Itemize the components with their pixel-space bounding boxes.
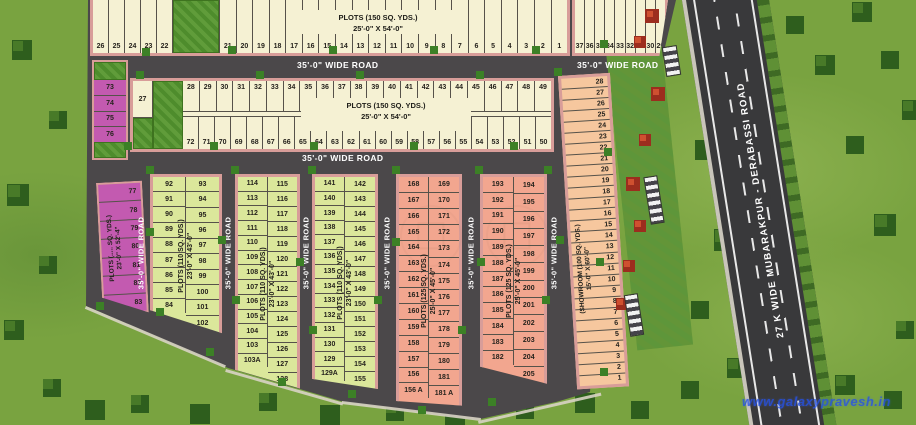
park-area (173, 0, 219, 53)
plot-number: 153 (345, 342, 375, 357)
plots-110-line1: PLOTS (110 SQ. YDS.) (336, 246, 345, 319)
plot-number: 158 (399, 336, 428, 352)
plot-number: 193 (483, 177, 513, 193)
plot-number: 3 (518, 0, 535, 53)
plots-150-line2: 25'-0" X 54'-0" (301, 111, 471, 122)
plot-number: 115 (268, 177, 298, 192)
website-watermark: www.galaxypravesh.in (742, 394, 891, 409)
purple-top-block: 73747576 (92, 60, 128, 160)
park-area (94, 62, 126, 80)
plots-150-line1: PLOTS (150 SQ. YDS.) (301, 100, 471, 111)
top-row-block: 2625242322 21201918171615141312111098765… (90, 0, 570, 56)
plot-number: 48 (518, 81, 535, 111)
plot-number: 34 (605, 0, 615, 53)
plot-number: 92 (153, 177, 185, 192)
plot-number: 6 (469, 0, 486, 53)
plots-110-line2: 23'-0" X 43'-0" (345, 246, 354, 319)
plot-number: 68 (247, 117, 263, 149)
plot-number: 141 (315, 177, 344, 192)
plot-number: 24 (125, 0, 141, 53)
plot-number: 131 (315, 323, 344, 338)
plot-number: 183 (483, 335, 513, 351)
column3-block: 1411401391381371361351341331321311301291… (312, 174, 378, 392)
plot-number: 103A (238, 354, 267, 368)
lane-line (692, 0, 765, 425)
plot-number: 125 (268, 327, 298, 342)
plot-number: 47 (502, 81, 519, 111)
plot-number: 169 (429, 177, 459, 193)
road-label-top-right: 35'-0" WIDE ROAD (577, 60, 658, 70)
plot-number: 114 (238, 177, 267, 192)
plot-number: 104 (238, 324, 267, 339)
plot-number: 73 (94, 80, 126, 96)
plot-number: 72 (183, 117, 199, 149)
plot-number: 143 (345, 192, 375, 207)
plot-number: 29 (200, 81, 217, 111)
plot-number: 93 (186, 177, 219, 192)
plot-number: 4 (502, 0, 519, 53)
plot-number: 156 A (399, 383, 428, 398)
logo-watermark (400, 205, 462, 267)
plot-number: 26 (93, 0, 109, 53)
plot-number: 157 (399, 352, 428, 368)
park-area (153, 81, 183, 149)
plot-col-73-76: 73747576 (94, 80, 126, 142)
column1-block: 929190898887868584 939495969798991001011… (150, 174, 222, 338)
plot-number: 51 (520, 117, 536, 149)
plot-number: 49 (535, 81, 551, 111)
plots-110-line1: PLOTS (110 SQ. YDS.) (177, 219, 186, 292)
plot-number: 138 (315, 221, 344, 236)
road-label-middle: 35'-0" WIDE ROAD (302, 153, 383, 163)
plot-number: 155 (345, 372, 375, 386)
plot-number: 52 (504, 117, 520, 149)
plot-number: 22 (157, 0, 172, 53)
plots-150-label: PLOTS (150 SQ. YDS.) 25'-0" X 54'-0" (293, 10, 463, 34)
plot-number: 30 (217, 81, 234, 111)
plot-number: 139 (315, 206, 344, 221)
plot-number: 32 (626, 0, 636, 53)
plot-number: 18 (270, 0, 287, 53)
column2-block: 114113112111110109108107106105104103103A… (235, 174, 300, 394)
plot-number: 144 (345, 207, 375, 222)
plot-number: 35 (595, 0, 605, 53)
plot-number: 77 (98, 183, 141, 204)
plot-number: 129 (315, 352, 344, 367)
plot-number: 181 A (429, 386, 459, 401)
plot-number: 140 (315, 192, 344, 207)
plot-number: 194 (514, 177, 545, 194)
plot-number: 168 (399, 177, 428, 193)
plot-number: 46 (485, 81, 502, 111)
road-label-top-left: 35'-0" WIDE ROAD (297, 60, 378, 70)
plot-27-column: 27 (133, 81, 153, 149)
plot-number: 54 (472, 117, 488, 149)
plot-number: 152 (345, 327, 375, 342)
plot-number: 112 (238, 206, 267, 221)
plot-number: 117 (268, 207, 298, 222)
plot-number: 69 (231, 117, 247, 149)
plot-number: 31 (233, 81, 250, 111)
road-label-v5: 35'-0" WIDE ROAD (467, 217, 476, 290)
plot-number: 203 (514, 332, 545, 349)
road-label-v6: 35'-0" WIDE ROAD (550, 217, 559, 290)
plot-number: 33 (615, 0, 625, 53)
park-area (133, 118, 153, 149)
plot-number: 129A (315, 367, 344, 381)
plot-number: 154 (345, 357, 375, 372)
plots-110-label: PLOTS (110 SQ. YDS.) 23'-0" X 43'-0" (259, 247, 277, 320)
plots-150-line1: PLOTS (150 SQ. YDS.) (293, 12, 463, 23)
plot-number: 1 (579, 373, 626, 386)
plot-number: 127 (268, 358, 298, 373)
plot-number: 180 (429, 354, 459, 370)
plot-number: 67 (263, 117, 279, 149)
plot-number: 84 (153, 299, 185, 313)
plot-number: 182 (483, 351, 513, 366)
plot-row-37-29: 373635343332313029 (575, 0, 665, 53)
plot-number: 76 (94, 127, 126, 142)
plot-number: 31 (636, 0, 646, 53)
plot-number: 70 (215, 117, 231, 149)
plot-number: 204 (514, 350, 545, 367)
plot-number: 91 (153, 192, 185, 207)
plot-number: 181 (429, 370, 459, 386)
corner-block-37-29: 373635343332313029 (572, 0, 668, 56)
plot-number: 116 (268, 192, 298, 207)
plot-number: 25 (109, 0, 125, 53)
plots-150-line2: 25'-0" X 54'-0" (293, 23, 463, 34)
plot-number: 101 (186, 300, 219, 315)
plot-number: 2 (535, 0, 552, 53)
site-plan-map: 2625242322 21201918171615141312111098765… (0, 0, 916, 425)
plot-number: 184 (483, 319, 513, 335)
plot-number: 142 (345, 177, 375, 192)
plot-number: 111 (238, 221, 267, 236)
road-label-v1: 35'-0" WIDE ROAD (137, 217, 146, 290)
plot-number: 50 (536, 117, 551, 149)
plot-number: 37 (575, 0, 585, 53)
road-label-v2: 35'-0" WIDE ROAD (224, 217, 233, 290)
plot-number: 130 (315, 338, 344, 353)
plot-number: 66 (279, 117, 295, 149)
plots-110-line2: 23'-0" X 43'-0" (268, 247, 277, 320)
plots-150-label-row2: PLOTS (150 SQ. YDS.) 25'-0" X 54'-0" (301, 98, 471, 131)
plot-number: 113 (238, 192, 267, 207)
plot-number: 156 (399, 368, 428, 384)
plot-number: 32 (250, 81, 267, 111)
road-label-v4: 35'-0" WIDE ROAD (383, 217, 392, 290)
plot-number: 34 (284, 81, 301, 111)
plots-110-line1: PLOTS (110 SQ. YDS.) (259, 247, 268, 320)
plot-number: 118 (268, 222, 298, 237)
row2-main: 2829303132333435363738394041424344454647… (183, 81, 551, 149)
plot-number: 145 (345, 222, 375, 237)
park-area (94, 142, 126, 158)
plot-number: 103 (238, 339, 267, 354)
plot-number: 53 (488, 117, 504, 149)
plot-number: 19 (253, 0, 270, 53)
plot-row-26-22: 2625242322 (93, 0, 173, 53)
plot-number: 74 (94, 96, 126, 112)
plot-number: 20 (237, 0, 254, 53)
plot-number: 71 (199, 117, 215, 149)
plot-number: 36 (585, 0, 595, 53)
row2-block: 27 2829303132333435363738394041424344454… (130, 78, 554, 152)
zebra-crossing (662, 45, 682, 77)
plot-number: 126 (268, 343, 298, 358)
plot-number: 28 (183, 81, 200, 111)
plot-number: 94 (186, 192, 219, 207)
plot-number: 1 (552, 0, 568, 53)
plots-110-label: PLOTS (110 SQ. YDS.) 23'-0" X 43'-0" (177, 219, 195, 292)
logo-watermark (486, 205, 548, 267)
plot-27: 27 (133, 81, 153, 118)
plot-number: 179 (429, 338, 459, 354)
plot-number: 21 (220, 0, 237, 53)
plots-110-line2: 23'-0" X 43'-0" (186, 219, 195, 292)
road-label-v3: 35'-0" WIDE ROAD (302, 217, 311, 290)
plot-number: 5 (485, 0, 502, 53)
plot-number: 23 (141, 0, 157, 53)
plot-number: 30 (646, 0, 656, 53)
plot-number: 75 (94, 112, 126, 128)
plots-110-label: PLOTS (110 SQ. YDS.) 23'-0" X 43'-0" (336, 246, 354, 319)
plot-number: 33 (267, 81, 284, 111)
highway-road: 27 K WIDE MUBARAKPUR - DERABASSI ROAD (681, 0, 837, 425)
